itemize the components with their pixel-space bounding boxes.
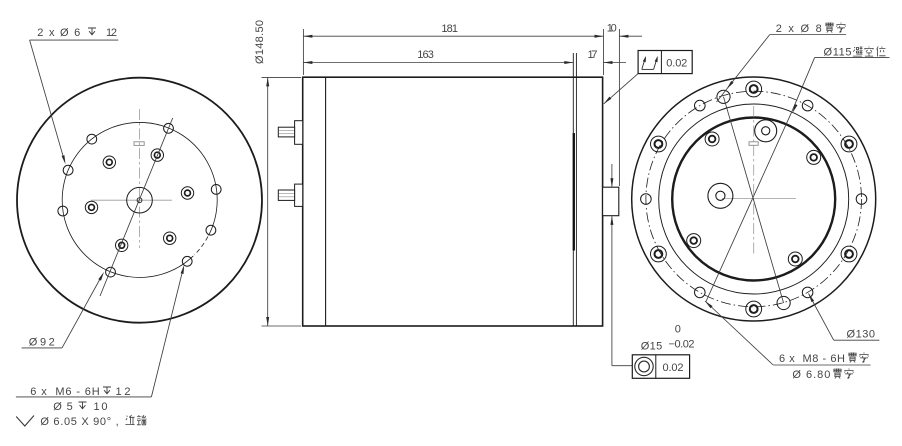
svg-text:2 x Ø 6: 2 x Ø 6 xyxy=(37,27,80,39)
svg-text:181: 181 xyxy=(441,23,458,35)
svg-text:Ø115: Ø115 xyxy=(824,47,852,59)
svg-text:10: 10 xyxy=(607,23,617,35)
svg-text:163: 163 xyxy=(417,49,434,61)
svg-text:0: 0 xyxy=(675,324,681,336)
svg-text:Ø 5: Ø 5 xyxy=(53,401,73,413)
svg-text:2 x Ø 8: 2 x Ø 8 xyxy=(776,23,822,35)
svg-text:Ø92: Ø92 xyxy=(29,337,55,349)
svg-text:Ø130: Ø130 xyxy=(847,329,876,341)
svg-text:−0.02: −0.02 xyxy=(669,339,695,351)
svg-text:6 x M6 - 6H: 6 x M6 - 6H xyxy=(30,386,99,398)
svg-text:0.02: 0.02 xyxy=(666,58,687,70)
svg-text:17: 17 xyxy=(588,49,598,61)
svg-text:Ø 6.80: Ø 6.80 xyxy=(792,369,830,381)
svg-text:Ø148.50: Ø148.50 xyxy=(254,20,266,64)
svg-text:6 x M8 - 6H: 6 x M8 - 6H xyxy=(779,353,845,365)
svg-text:Ø15: Ø15 xyxy=(641,341,662,353)
svg-text:12: 12 xyxy=(106,27,117,39)
svg-text:0.02: 0.02 xyxy=(663,362,684,374)
svg-text:10: 10 xyxy=(94,401,108,413)
svg-text:Ø 6.05 X 90° ,: Ø 6.05 X 90° , xyxy=(40,416,122,428)
